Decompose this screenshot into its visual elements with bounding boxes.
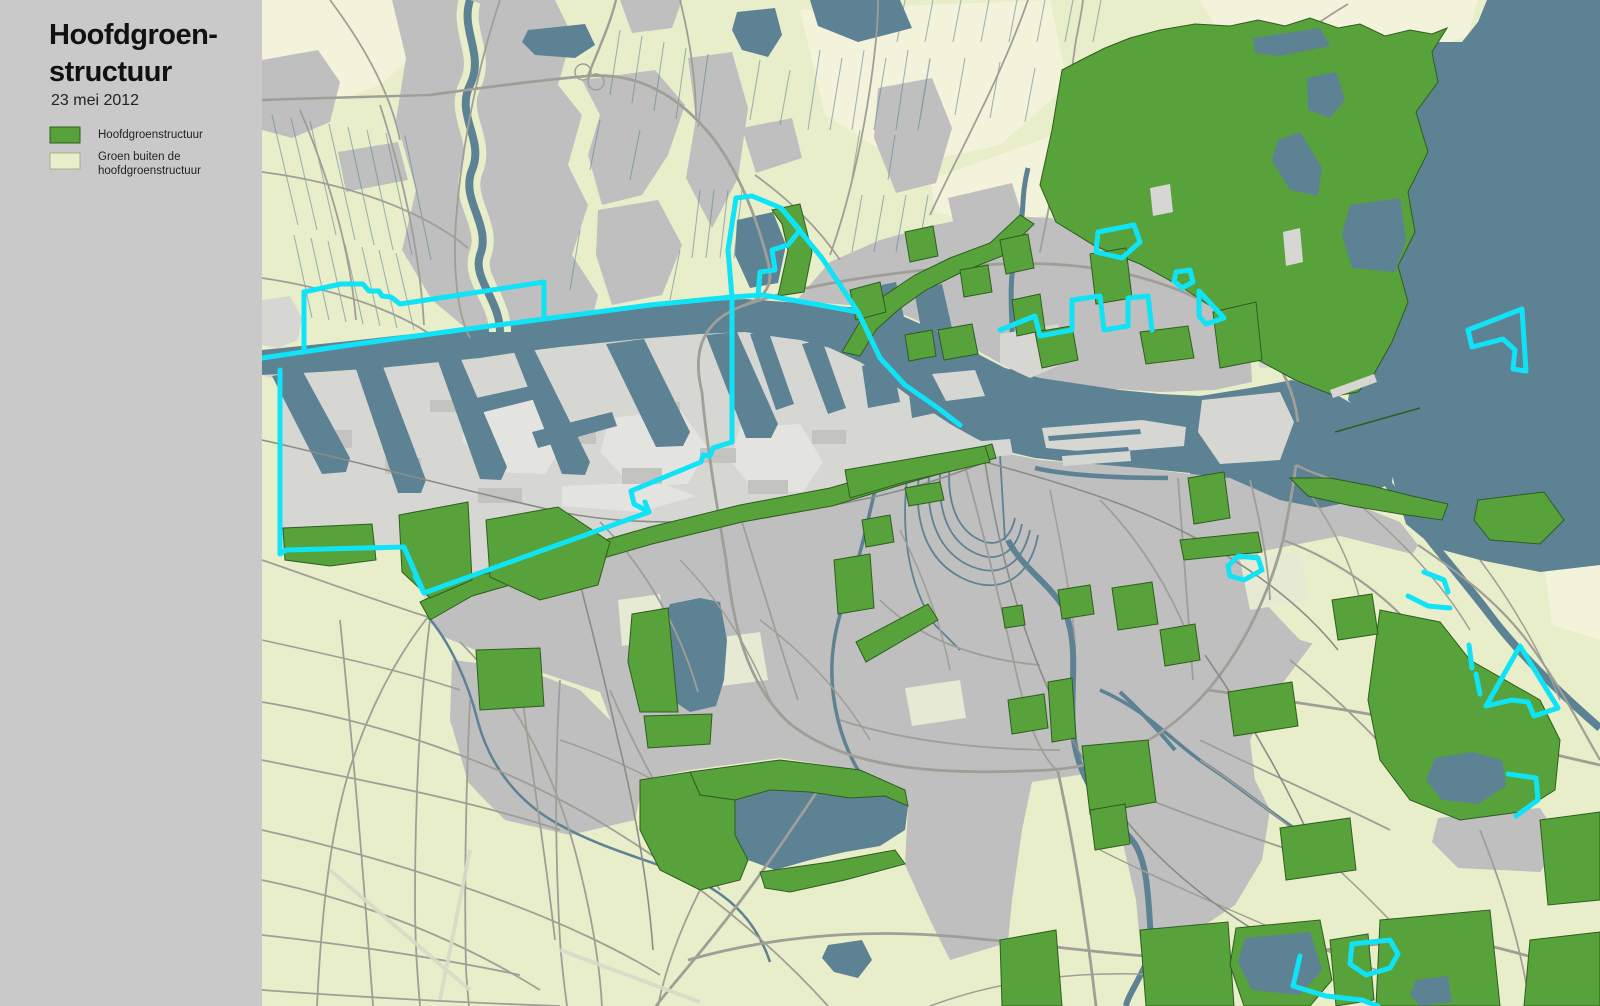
svg-text:Hoofdgroen-: Hoofdgroen- — [49, 19, 217, 51]
svg-text:hoofdgroenstructuur: hoofdgroenstructuur — [98, 165, 201, 177]
svg-text:23 mei 2012: 23 mei 2012 — [51, 92, 139, 109]
svg-text:structuur: structuur — [49, 56, 172, 88]
svg-text:Hoofdgroenstructuur: Hoofdgroenstructuur — [98, 129, 203, 141]
svg-text:Groen buiten de: Groen buiten de — [98, 151, 180, 163]
